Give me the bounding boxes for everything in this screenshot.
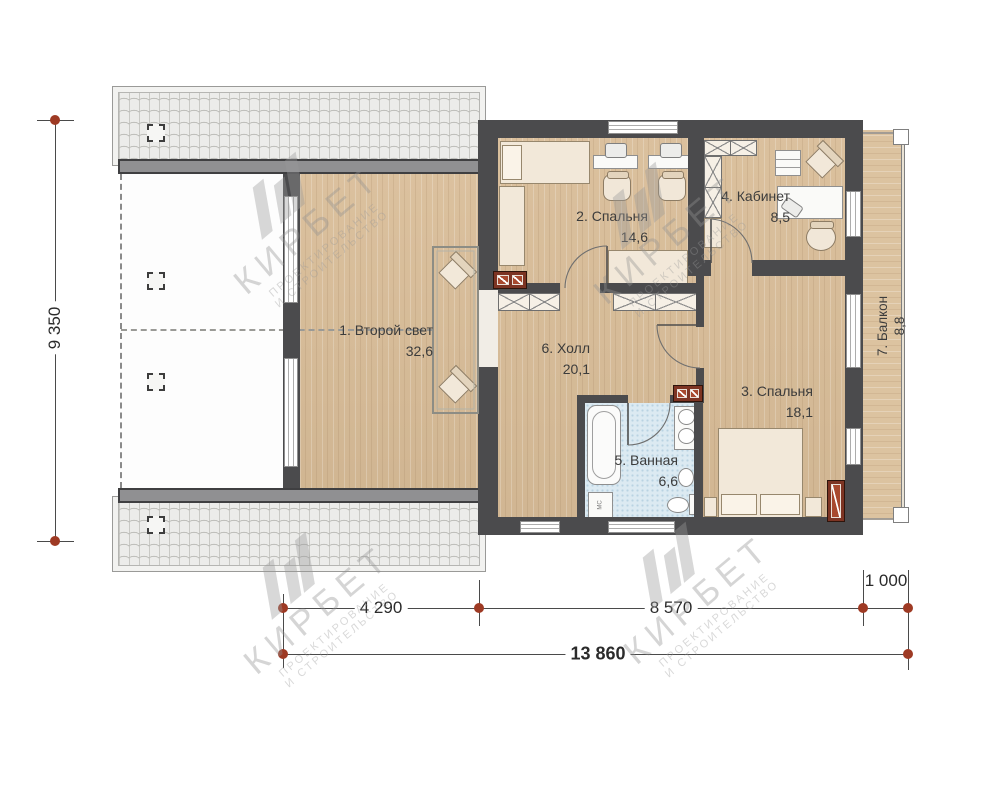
wall-main-left-upper — [478, 120, 498, 290]
watermark-sub2: И СТРОИТЕЛЬСТВО — [250, 561, 434, 718]
column-marker — [147, 373, 165, 391]
window — [608, 521, 675, 533]
room-area: 20,1 — [490, 359, 590, 380]
railing-post — [893, 129, 909, 145]
watermark-sub2: И СТРОИТЕЛЬСТВО — [630, 551, 814, 708]
chimney-block — [673, 385, 703, 402]
room-name: 5. Ванная — [614, 452, 678, 468]
desktop-computer — [660, 143, 682, 158]
dim-marker — [903, 603, 913, 613]
beam-bottom — [118, 488, 497, 503]
dim-label-total: 13 860 — [565, 644, 630, 665]
chimney-block — [493, 271, 527, 289]
room-area: 18,1 — [713, 402, 813, 423]
dim-marker — [903, 649, 913, 659]
wall-office-bottom-right — [752, 260, 863, 276]
room-label-office: 4. Кабинет 8,5 — [690, 186, 790, 228]
roof-tile-pattern — [118, 502, 480, 566]
window — [284, 196, 298, 303]
room-name: 1. Второй свет — [339, 322, 433, 338]
nightstand — [704, 497, 717, 517]
room-name: 4. Кабинет — [721, 188, 790, 204]
dim-marker — [278, 603, 288, 613]
toilet-bowl — [667, 497, 689, 513]
window — [520, 521, 560, 533]
room-label-bedroom2: 2. Спальня 14,6 — [538, 206, 648, 248]
window — [846, 428, 861, 465]
window — [846, 191, 861, 237]
room-label-bedroom3: 3. Спальня 18,1 — [713, 381, 813, 423]
watermark-sub1: ПРОЕКТИРОВАНИЕ — [242, 552, 426, 709]
bidet — [678, 468, 694, 487]
drawer-chest — [775, 150, 801, 176]
room-name: 6. Холл — [541, 340, 590, 356]
pillow — [502, 145, 522, 180]
room-label-balcony: 7. Балкон 8,8 — [874, 276, 910, 376]
room-name: 7. Балкон — [875, 296, 890, 356]
railing-post — [893, 507, 909, 523]
room-name: 3. Спальня — [741, 383, 813, 399]
flue-unit — [827, 480, 845, 522]
room-area: 6,6 — [578, 471, 678, 492]
nightstand — [805, 497, 822, 517]
dim-marker — [50, 115, 60, 125]
wall-main-left-lower — [478, 367, 498, 535]
wall-hall-bedroom3-upper — [696, 268, 704, 327]
column-marker — [147, 124, 165, 142]
room-area: 32,6 — [303, 341, 433, 362]
sink — [678, 428, 695, 444]
pillow — [721, 494, 757, 515]
void-open-below — [120, 174, 285, 488]
wardrobe — [704, 140, 757, 156]
column-marker — [147, 516, 165, 534]
floor-plan: МС — [0, 0, 1000, 791]
room-label-hall: 6. Холл 20,1 — [490, 338, 590, 380]
room-name: 2. Спальня — [576, 208, 648, 224]
watermark-sub1: ПРОЕКТИРОВАНИЕ — [622, 542, 806, 699]
closet — [499, 186, 525, 266]
wall-hall-top-right — [600, 283, 704, 293]
roof-top — [112, 86, 486, 166]
room-label-bathroom: 5. Ванная 6,6 — [578, 450, 678, 492]
dim-marker — [474, 603, 484, 613]
sink — [678, 409, 695, 425]
dim-label-seg-b: 8 570 — [645, 598, 698, 618]
balcony-door — [846, 294, 861, 368]
room-area: 14,6 — [538, 227, 648, 248]
washing-machine-label: МС — [598, 500, 604, 509]
beam-top — [118, 159, 497, 174]
dim-marker — [278, 649, 288, 659]
office-chair — [603, 174, 631, 201]
room-area: 8,8 — [892, 317, 907, 336]
cabinet — [608, 250, 688, 287]
roof-tile-pattern — [118, 92, 480, 160]
dim-label-seg-c: 1 000 — [860, 571, 913, 591]
dim-marker — [858, 603, 868, 613]
wardrobe — [498, 293, 560, 311]
wall-bathroom-right — [694, 395, 703, 521]
office-chair — [806, 224, 836, 251]
window — [284, 358, 298, 467]
washing-machine: МС — [588, 492, 613, 518]
room-label-second-light: 1. Второй свет 32,6 — [303, 320, 433, 362]
roof-bottom — [112, 496, 486, 572]
pillow — [760, 494, 800, 515]
wardrobe — [613, 293, 697, 311]
desktop-computer — [605, 143, 627, 158]
office-chair — [658, 174, 686, 201]
window — [608, 121, 678, 134]
room-area: 8,5 — [690, 207, 790, 228]
dim-label-vertical-total: 9 350 — [45, 302, 65, 355]
dim-label-seg-a: 4 290 — [355, 598, 408, 618]
dim-marker — [50, 536, 60, 546]
column-marker — [147, 272, 165, 290]
